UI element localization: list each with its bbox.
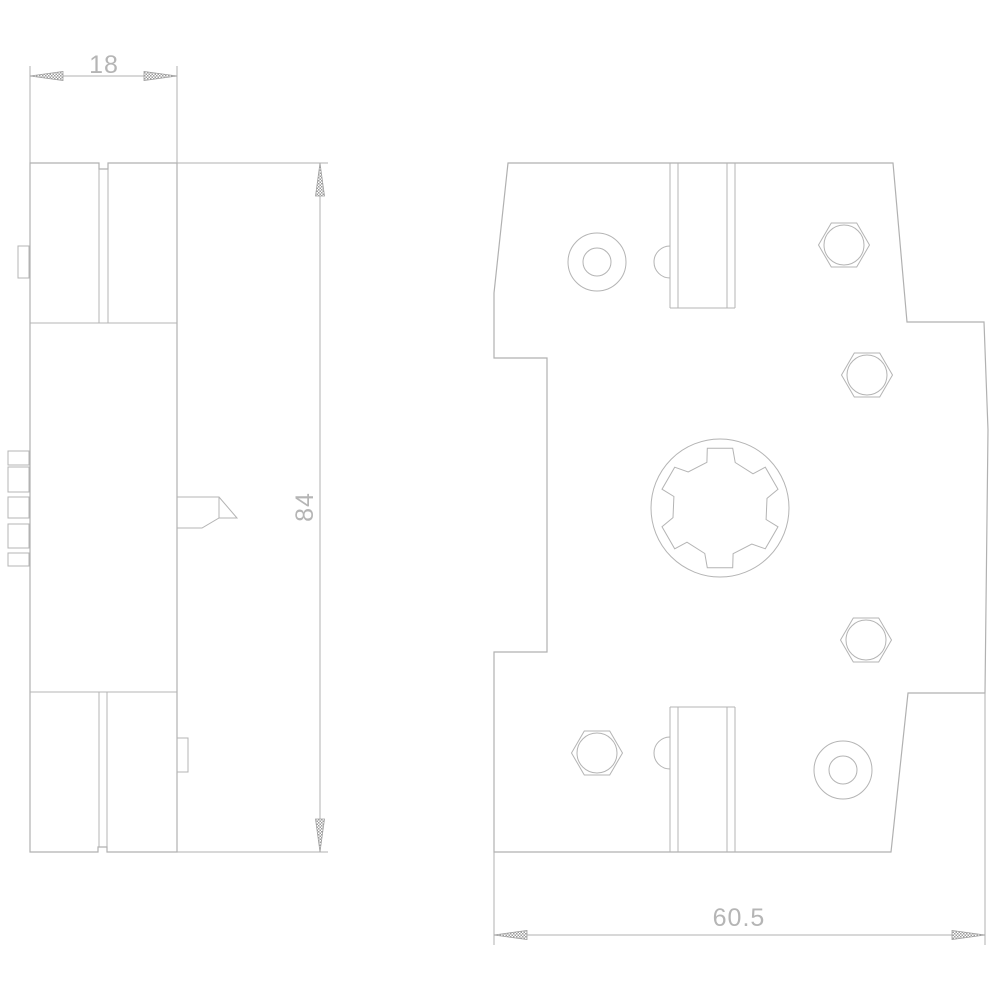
hex-nut-top-right <box>819 223 870 267</box>
dim-arrowhead-up-icon <box>316 163 325 196</box>
dim-arrowhead-left-icon <box>30 72 63 81</box>
terminal-channel-top <box>654 163 735 308</box>
rib <box>8 451 29 465</box>
terminal-channel-bottom <box>654 707 735 852</box>
dim-label-top-width: 18 <box>89 51 119 79</box>
rail-clip-ribs <box>8 451 29 566</box>
dim-arrowhead-right-icon <box>952 931 985 940</box>
rib <box>8 524 29 548</box>
left-edge-tab <box>18 246 29 278</box>
hex-nut-lower-right <box>841 618 892 662</box>
rib <box>8 467 29 492</box>
mounting-latch <box>177 497 237 528</box>
dim-arrowhead-down-icon <box>316 819 325 852</box>
front-view <box>494 163 988 852</box>
spline-profile <box>662 448 778 567</box>
dim-label-bottom-width: 60.5 <box>713 904 766 932</box>
side-view-outline <box>30 163 177 852</box>
technical-drawing: 18 84 60.5 <box>0 0 1000 1000</box>
dim-arrowhead-right-icon <box>144 72 177 81</box>
side-view-top-section-lines <box>99 169 108 323</box>
washer-top <box>568 233 626 291</box>
side-view <box>8 163 237 852</box>
dim-top-width: 18 <box>30 51 177 163</box>
hex-nut-mid-right <box>842 353 893 397</box>
rib <box>8 553 29 566</box>
channel-semicircle-top <box>654 246 670 278</box>
dim-side-height: 84 <box>177 163 328 852</box>
right-edge-tab <box>177 738 188 772</box>
rib <box>8 497 29 518</box>
channel-semicircle-bottom <box>654 737 670 769</box>
washer-bottom <box>814 741 872 799</box>
dim-arrowhead-left-icon <box>494 931 527 940</box>
spline-hub <box>651 439 789 577</box>
hex-nut-bottom-left <box>572 731 623 775</box>
dim-label-side-height: 84 <box>291 492 319 522</box>
side-view-bottom-section-lines <box>99 692 107 847</box>
drawing-canvas: 18 84 60.5 <box>0 0 1000 1000</box>
extension-lines <box>30 66 177 163</box>
dim-bottom-width: 60.5 <box>494 693 985 945</box>
